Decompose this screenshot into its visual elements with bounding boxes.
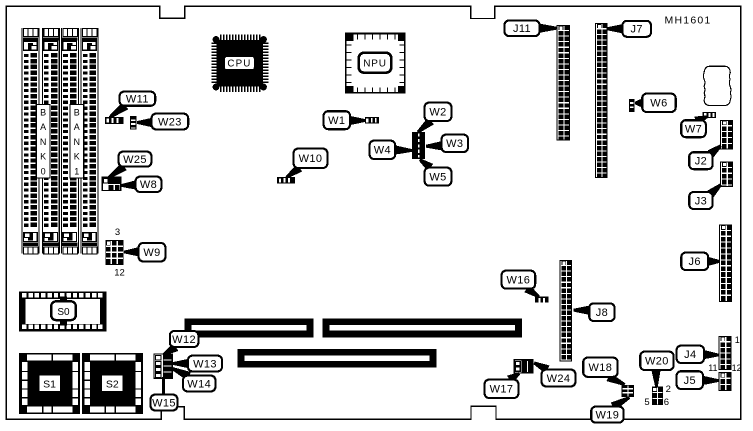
svg-text:W8: W8 [140, 179, 157, 191]
svg-text:W6: W6 [650, 98, 667, 110]
svg-text:N: N [74, 137, 81, 147]
svg-text:W15: W15 [152, 397, 176, 409]
svg-text:11: 11 [708, 363, 717, 373]
svg-text:MH1601: MH1601 [665, 15, 712, 27]
svg-text:W10: W10 [299, 153, 323, 165]
svg-text:S1: S1 [43, 378, 56, 390]
svg-text:W3: W3 [446, 138, 463, 150]
svg-text:W7: W7 [685, 124, 702, 136]
svg-text:W16: W16 [506, 275, 530, 287]
svg-text:K: K [74, 152, 80, 162]
svg-text:5: 5 [644, 397, 649, 408]
svg-text:6: 6 [664, 397, 669, 408]
svg-text:1: 1 [74, 166, 79, 176]
svg-text:S2: S2 [106, 378, 119, 390]
svg-text:J5: J5 [684, 375, 696, 387]
svg-text:W18: W18 [588, 362, 612, 374]
svg-text:J7: J7 [631, 24, 643, 36]
svg-text:J8: J8 [596, 307, 608, 319]
svg-text:W13: W13 [193, 358, 217, 370]
svg-text:W12: W12 [172, 334, 196, 346]
svg-text:J6: J6 [688, 256, 700, 268]
svg-text:W24: W24 [547, 373, 571, 385]
svg-text:W11: W11 [126, 94, 149, 106]
svg-text:1: 1 [735, 335, 740, 345]
svg-text:W19: W19 [595, 410, 619, 422]
svg-text:K: K [40, 152, 46, 162]
svg-text:N: N [40, 137, 47, 147]
svg-text:A: A [40, 122, 46, 132]
svg-text:W1: W1 [328, 115, 345, 127]
svg-text:NPU: NPU [363, 58, 387, 69]
svg-text:W23: W23 [158, 116, 182, 128]
svg-text:W25: W25 [123, 154, 147, 166]
svg-text:W5: W5 [429, 172, 446, 184]
svg-text:12: 12 [114, 268, 125, 279]
svg-text:2: 2 [666, 384, 671, 395]
svg-text:B: B [74, 108, 80, 118]
svg-text:CPU: CPU [227, 58, 251, 69]
svg-text:W17: W17 [490, 384, 514, 396]
svg-text:W4: W4 [374, 145, 391, 157]
svg-text:J3: J3 [695, 195, 707, 207]
svg-text:W20: W20 [645, 356, 669, 368]
svg-text:S0: S0 [57, 307, 70, 318]
svg-text:A: A [74, 122, 80, 132]
svg-text:W14: W14 [187, 378, 211, 390]
svg-text:W2: W2 [429, 107, 446, 119]
svg-text:0: 0 [41, 166, 46, 176]
svg-text:W9: W9 [143, 247, 160, 259]
svg-text:J2: J2 [695, 156, 707, 168]
svg-text:12: 12 [732, 363, 742, 373]
svg-text:J11: J11 [513, 23, 531, 35]
svg-text:B: B [40, 108, 46, 118]
svg-text:J4: J4 [684, 349, 696, 361]
svg-text:3: 3 [115, 227, 120, 238]
